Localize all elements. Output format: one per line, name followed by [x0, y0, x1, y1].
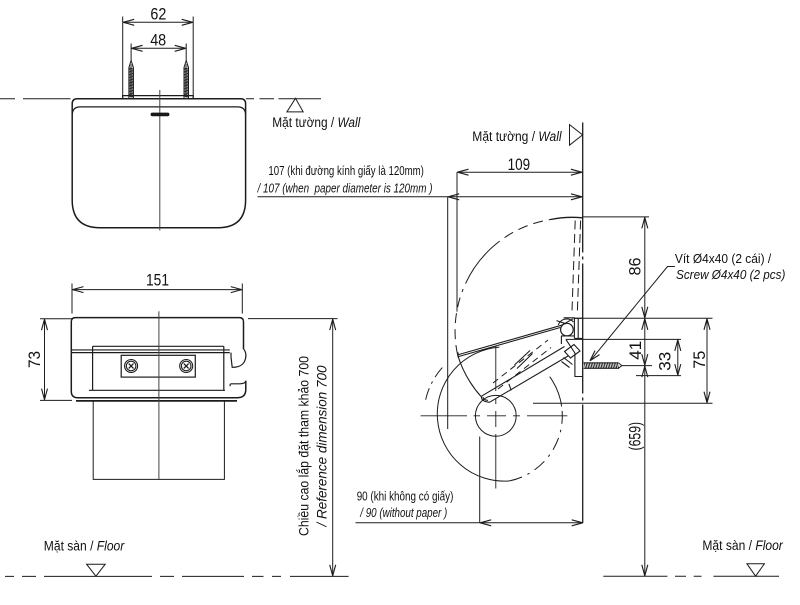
svg-text:Chiều cao lắp đặt tham khảo 70: Chiều cao lắp đặt tham khảo 700	[297, 356, 312, 536]
svg-text:90 (khi không có giấy): 90 (khi không có giấy)	[357, 488, 454, 503]
svg-text:109: 109	[508, 155, 531, 174]
svg-text:62: 62	[150, 4, 166, 23]
svg-text:73: 73	[25, 351, 44, 368]
svg-text:48: 48	[150, 30, 166, 49]
svg-text:Screw Ø4x40 (2 pcs): Screw Ø4x40 (2 pcs)	[676, 267, 785, 282]
svg-text:41: 41	[626, 341, 645, 360]
svg-text:Mặt sàn / Floor: Mặt sàn / Floor	[702, 538, 783, 553]
svg-text:107 (khi đường kính giấy là 12: 107 (khi đường kính giấy là 120mm)	[268, 163, 424, 178]
svg-text:/ 90 (without paper ): / 90 (without paper )	[360, 505, 448, 520]
svg-text:Mặt tường / Wall: Mặt tường / Wall	[272, 115, 361, 130]
svg-text:(659): (659)	[625, 422, 644, 451]
svg-text:Mặt sàn / Floor: Mặt sàn / Floor	[44, 539, 125, 554]
svg-text:/ Reference dimension 700: / Reference dimension 700	[315, 365, 330, 527]
svg-text:Vít Ø4x40 (2 cái) /: Vít Ø4x40 (2 cái) /	[675, 251, 772, 266]
svg-text:Mặt tường / Wall: Mặt tường / Wall	[472, 129, 562, 144]
svg-text:151: 151	[146, 271, 169, 290]
svg-text:86: 86	[626, 258, 645, 276]
svg-text:/ 107 (when paper diameter is: / 107 (when paper diameter is 120mm )	[257, 181, 433, 196]
svg-text:75: 75	[690, 351, 709, 369]
svg-text:33: 33	[656, 352, 675, 371]
